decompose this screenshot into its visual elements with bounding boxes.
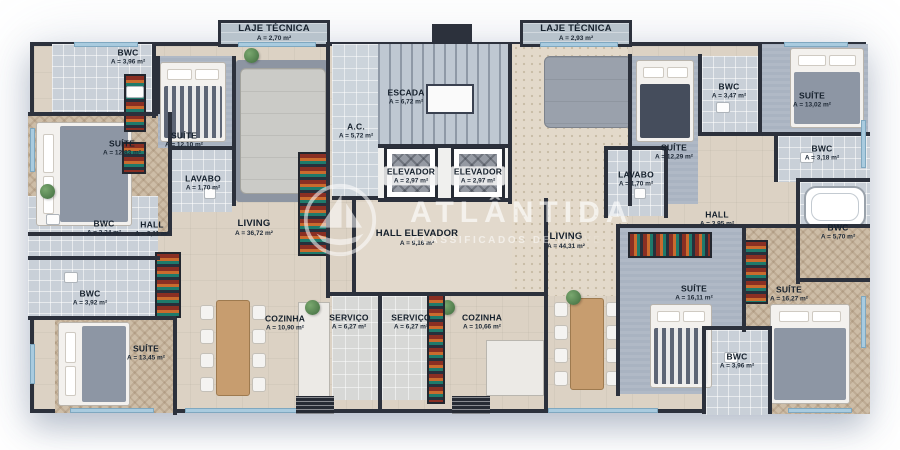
bed-blanket xyxy=(640,84,690,138)
wall xyxy=(796,178,800,284)
room-label-lavabo-left: LAVABOA = 1,70 m² xyxy=(185,174,221,191)
window xyxy=(788,408,852,413)
wall xyxy=(774,136,778,182)
plant-icon xyxy=(40,184,55,199)
room-label-suite-1210: SUÍTEA = 12,10 m² xyxy=(165,131,203,148)
kitchen-island-right xyxy=(486,340,544,396)
toilet-fixture xyxy=(716,102,730,113)
window xyxy=(548,408,658,413)
dining-table-right xyxy=(554,298,620,390)
room-label-bwc-324: BWCA = 3,24 m² xyxy=(87,219,121,236)
wall xyxy=(28,112,158,116)
plant-icon xyxy=(244,48,259,63)
wall xyxy=(156,56,160,114)
room-label-bwc-bottomright: BWCA = 3,96 m² xyxy=(720,352,754,369)
room-label-suite-1627: SUÍTEA = 16,27 m² xyxy=(770,285,808,302)
dining-table-left xyxy=(200,300,266,396)
wall xyxy=(796,278,870,282)
plant-icon xyxy=(305,300,320,315)
dining-table-top xyxy=(216,300,250,396)
room-label-escada: ESCADAA = 6,72 m² xyxy=(387,88,424,105)
room-label-cozinha-left: COZINHAA = 10,90 m² xyxy=(265,314,305,331)
dining-chairs xyxy=(252,300,266,396)
dining-table-top xyxy=(570,298,604,390)
sink-fixture xyxy=(634,188,646,199)
room-label-servico-right: SERVIÇOA = 6,27 m² xyxy=(391,313,431,330)
floor-ac xyxy=(332,44,378,196)
wall xyxy=(28,316,176,320)
wall xyxy=(378,144,512,148)
bed-pillows xyxy=(637,61,693,83)
wall xyxy=(508,42,512,204)
wall xyxy=(758,42,762,136)
room-label-bwc-318: BWCA = 3,18 m² xyxy=(805,144,839,161)
sink-fixture xyxy=(126,86,144,98)
room-label-ac: A.C.A = 5,72 m² xyxy=(339,122,373,139)
watermark-brand: ATLÂNTIDA xyxy=(410,196,633,230)
bed-pillows xyxy=(771,305,849,327)
dining-chairs xyxy=(554,298,568,390)
room-label-bwc-392: BWCA = 3,92 m² xyxy=(73,289,107,306)
window xyxy=(30,128,35,172)
watermark-subtitle: CLASSIFICADOS DE IMÓVEIS xyxy=(412,235,617,246)
room-label-hall-left: HALLA = 2,11 m² xyxy=(135,220,169,237)
window xyxy=(861,296,866,348)
room-label-elevador-right: ELEVADORA = 2,97 m² xyxy=(451,166,505,185)
ac-grill xyxy=(296,396,334,414)
wall xyxy=(330,292,548,296)
wall xyxy=(698,54,702,136)
window xyxy=(784,42,848,47)
ac-grill xyxy=(452,396,490,414)
room-label-elevador-left: ELEVADORA = 2,97 m² xyxy=(384,166,438,185)
room-label-bwc-347: BWCA = 3,47 m² xyxy=(712,82,746,99)
wall xyxy=(702,326,706,414)
bed-blanket xyxy=(82,326,126,402)
sofa-living-right xyxy=(544,56,632,128)
window xyxy=(238,42,316,47)
toilet-fixture xyxy=(46,214,60,225)
shelf-column xyxy=(427,294,445,404)
bed-pillows xyxy=(651,305,711,327)
bed-blanket xyxy=(774,328,846,400)
window xyxy=(540,42,618,47)
plant-icon xyxy=(566,290,581,305)
room-label-suite-1302: SUÍTEA = 13,02 m² xyxy=(793,91,831,108)
window xyxy=(70,408,154,413)
room-label-bwc-570: BWCA = 5,70 m² xyxy=(821,223,855,240)
wall xyxy=(796,178,870,182)
bed-blanket xyxy=(654,328,708,384)
bed-suite-1229 xyxy=(636,60,694,142)
wall xyxy=(232,56,236,206)
wardrobe xyxy=(155,252,181,318)
bed-pillows xyxy=(791,49,863,71)
bed-pillows xyxy=(59,323,81,405)
room-label-suite-1283: SUÍTEA = 12,83 m² xyxy=(103,139,141,156)
wall xyxy=(378,294,382,413)
room-label-servico-left: SERVIÇOA = 6,27 m² xyxy=(329,313,369,330)
wall xyxy=(698,132,870,136)
window xyxy=(185,408,305,413)
floor-plan-canvas: BWCA = 3,96 m² SUÍTEA = 12,83 m² SUÍTEA … xyxy=(0,0,900,450)
wardrobe xyxy=(744,240,768,304)
window xyxy=(861,120,866,168)
roof-duct xyxy=(432,24,472,44)
room-label-lavabo-right: LAVABOA = 1,70 m² xyxy=(618,170,654,187)
wall xyxy=(544,296,548,413)
floor-bwc-bottomright xyxy=(706,330,768,415)
wall xyxy=(326,42,330,298)
bed-suite-1627 xyxy=(770,304,850,404)
stair-landing xyxy=(426,84,474,114)
wall xyxy=(768,326,772,414)
room-label-bwc-topleft: BWCA = 3,96 m² xyxy=(111,48,145,65)
bookshelf-right-hall xyxy=(628,232,712,258)
bed-suite-1302 xyxy=(790,48,864,128)
wall xyxy=(616,224,620,396)
room-label-suite-1229: SUÍTEA = 12,29 m² xyxy=(655,143,693,160)
room-label-hall-right: HALLA = 3,95 m² xyxy=(700,210,734,227)
window xyxy=(74,42,138,47)
room-label-cozinha-right: COZINHAA = 10,66 m² xyxy=(462,313,502,330)
room-label-living-left: LIVINGA = 36,72 m² xyxy=(235,219,273,237)
wall xyxy=(28,256,160,260)
room-label-suite-1345: SUÍTEA = 13,45 m² xyxy=(127,344,165,361)
wardrobe xyxy=(124,74,146,132)
bed-pillows xyxy=(37,123,59,225)
room-label-suite-1611: SUÍTEA = 16,11 m² xyxy=(675,284,713,301)
room-label-laje-right: LAJE TÉCNICAA = 2,93 m² xyxy=(540,24,612,42)
wall xyxy=(173,318,177,415)
sailboat-icon xyxy=(302,182,378,258)
wall xyxy=(702,326,772,330)
bed-pillows xyxy=(161,63,225,85)
window xyxy=(30,344,35,384)
room-label-laje-left: LAJE TÉCNICAA = 2,70 m² xyxy=(238,24,310,42)
dining-chairs xyxy=(200,300,214,396)
bed-suite-1345 xyxy=(58,322,130,406)
wall xyxy=(742,224,746,332)
toilet-fixture xyxy=(64,272,78,283)
